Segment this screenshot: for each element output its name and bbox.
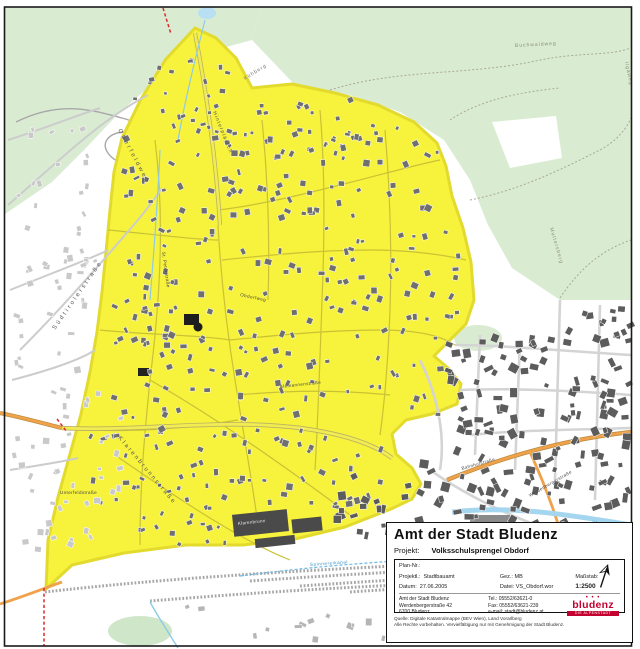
- building: [412, 363, 415, 367]
- building: [204, 388, 210, 393]
- building: [287, 120, 292, 125]
- building: [143, 284, 150, 290]
- building: [57, 351, 62, 356]
- building: [312, 636, 319, 643]
- building: [618, 462, 623, 467]
- building: [310, 111, 314, 115]
- building: [148, 200, 153, 204]
- project-row: Projekt: Volksschulsprengel Obdorf: [394, 546, 625, 555]
- building: [30, 488, 35, 493]
- building: [622, 493, 629, 503]
- building: [339, 508, 345, 514]
- building: [81, 302, 87, 309]
- building: [510, 388, 518, 398]
- building: [267, 499, 272, 505]
- building: [280, 491, 287, 497]
- building: [308, 129, 312, 134]
- building: [410, 405, 415, 410]
- building: [157, 65, 162, 70]
- building: [263, 111, 268, 116]
- building: [360, 239, 364, 243]
- building: [131, 416, 135, 420]
- building: [360, 503, 367, 509]
- building: [93, 497, 100, 504]
- building: [255, 428, 260, 433]
- building: [68, 332, 75, 336]
- building: [260, 104, 264, 108]
- building: [547, 336, 555, 343]
- building: [354, 133, 360, 140]
- building: [404, 290, 411, 297]
- building: [600, 461, 609, 467]
- building: [191, 118, 196, 122]
- building: [371, 287, 377, 294]
- building: [296, 267, 301, 274]
- building: [325, 359, 330, 363]
- building: [244, 133, 247, 137]
- building: [498, 341, 504, 349]
- building: [590, 375, 596, 381]
- building: [621, 440, 631, 450]
- building: [253, 346, 258, 352]
- address-column: Amt der Stadt Bludenz Werdenbergerstraße…: [399, 596, 488, 616]
- building: [144, 433, 150, 437]
- drawn-by-field: Gez.: MB: [500, 573, 576, 581]
- building: [147, 369, 152, 375]
- building: [37, 529, 44, 536]
- building: [160, 108, 165, 114]
- building: [321, 160, 326, 167]
- building: [292, 410, 300, 418]
- source-note: Quelle: Digitale Katastralmappe (BEV Wie…: [394, 616, 625, 628]
- building: [64, 500, 69, 503]
- building: [336, 199, 342, 206]
- building: [15, 436, 21, 442]
- building: [229, 479, 234, 483]
- building: [424, 269, 431, 276]
- building: [376, 505, 382, 513]
- building: [45, 519, 52, 527]
- building: [451, 349, 461, 358]
- building: [129, 166, 135, 174]
- building: [413, 314, 418, 321]
- building: [318, 271, 325, 275]
- building: [333, 515, 341, 523]
- building: [210, 229, 215, 235]
- building: [515, 340, 523, 347]
- building: [73, 366, 81, 374]
- building: [169, 531, 175, 537]
- bludenz-logo: • • • bludenz DIE ALPENSTADT: [566, 596, 620, 616]
- building: [401, 494, 409, 501]
- building: [435, 413, 440, 417]
- building: [97, 467, 101, 471]
- building: [283, 270, 288, 274]
- building: [532, 452, 541, 461]
- building: [245, 150, 250, 156]
- building: [309, 501, 313, 505]
- building: [148, 77, 154, 83]
- building: [161, 188, 166, 192]
- building: [128, 189, 134, 196]
- building: [42, 437, 49, 444]
- building: [63, 259, 67, 264]
- contact-column: Tel.: 05552/63621-0 Fax: 05552/63621-239…: [488, 596, 566, 616]
- building: [63, 403, 67, 410]
- building: [142, 306, 148, 311]
- building: [479, 339, 486, 345]
- building: [325, 277, 329, 283]
- building: [606, 399, 614, 403]
- building: [433, 336, 437, 340]
- building: [153, 397, 160, 403]
- building: [559, 498, 566, 505]
- building: [340, 144, 347, 152]
- building: [256, 109, 262, 115]
- building: [510, 414, 519, 424]
- building: [123, 480, 130, 485]
- building: [452, 267, 459, 271]
- building: [437, 366, 444, 372]
- building: [99, 441, 103, 444]
- building: [99, 476, 104, 480]
- building: [192, 473, 196, 478]
- building: [345, 500, 353, 507]
- building: [465, 430, 472, 436]
- building: [208, 111, 212, 115]
- agency-title: Amt der Stadt Bludenz: [394, 527, 625, 543]
- building: [207, 506, 211, 510]
- plan-number-label: Plan-Nr.:: [399, 562, 503, 570]
- building: [570, 410, 575, 416]
- building: [351, 623, 354, 627]
- building: [255, 260, 261, 267]
- building: [390, 183, 396, 189]
- building: [329, 257, 333, 262]
- building: [589, 485, 595, 491]
- building: [301, 211, 306, 215]
- building: [116, 485, 121, 492]
- building: [455, 310, 460, 314]
- building: [294, 625, 302, 629]
- building: [300, 180, 306, 187]
- building: [206, 259, 212, 264]
- logo-wordmark: bludenz: [566, 600, 620, 610]
- building: [267, 136, 273, 143]
- building: [377, 160, 383, 165]
- building: [83, 160, 88, 166]
- building: [435, 150, 438, 154]
- building: [570, 403, 575, 408]
- building: [231, 433, 237, 438]
- building: [623, 433, 632, 441]
- building: [547, 491, 551, 496]
- building: [419, 459, 430, 469]
- building: [286, 483, 294, 491]
- building: [76, 226, 82, 232]
- building: [230, 212, 237, 218]
- building: [244, 208, 251, 215]
- building: [235, 369, 243, 377]
- project-lead-field: Projektl.: Stadtbauamt: [399, 573, 500, 581]
- building: [28, 132, 34, 138]
- building: [222, 176, 229, 182]
- building: [238, 392, 244, 399]
- building: [349, 465, 353, 471]
- building: [31, 444, 36, 449]
- building: [142, 516, 146, 520]
- building: [180, 344, 187, 348]
- building: [580, 450, 585, 459]
- plan-info-box: Plan-Nr.: Projektl.: Stadtbauamt Gez.: M…: [394, 559, 625, 613]
- building: [147, 325, 153, 332]
- building: [408, 247, 414, 250]
- address-section: Amt der Stadt Bludenz Werdenbergerstraße…: [399, 593, 620, 616]
- building: [121, 409, 128, 415]
- building: [358, 275, 365, 280]
- building: [456, 253, 461, 259]
- building: [26, 280, 34, 287]
- building: [307, 190, 313, 196]
- building: [250, 131, 254, 135]
- building: [154, 303, 161, 308]
- building: [374, 131, 379, 136]
- building: [278, 248, 282, 255]
- building: [214, 469, 219, 476]
- building: [76, 231, 82, 236]
- file-field: Datei: VS_Obdorf.wor: [500, 583, 576, 591]
- building: [56, 162, 61, 166]
- building: [219, 65, 223, 70]
- building: [365, 618, 372, 626]
- building: [306, 362, 314, 370]
- building: [45, 529, 50, 536]
- building: [307, 207, 313, 214]
- building: [252, 333, 257, 339]
- building: [57, 285, 62, 290]
- building: [132, 273, 137, 277]
- building: [223, 540, 226, 545]
- building: [346, 390, 350, 394]
- building: [222, 430, 227, 436]
- building: [337, 491, 346, 501]
- building: [201, 208, 207, 214]
- building: [540, 437, 548, 446]
- building: [275, 154, 281, 159]
- building: [187, 368, 194, 375]
- scale-value: 1:2500: [575, 583, 595, 590]
- building: [34, 203, 38, 209]
- building: [85, 183, 90, 190]
- building: [474, 417, 483, 423]
- building: [464, 514, 474, 520]
- building: [462, 348, 471, 359]
- building: [291, 309, 297, 315]
- building: [263, 397, 269, 402]
- building: [351, 213, 356, 218]
- map-sheet: OberfeldwegHinterplärschKühbergBuchwaldw…: [0, 0, 640, 649]
- building: [377, 137, 384, 143]
- building: [253, 633, 258, 639]
- building: [22, 539, 29, 546]
- building: [71, 483, 75, 489]
- building: [285, 351, 291, 356]
- building: [198, 606, 205, 612]
- building: [304, 395, 308, 402]
- building: [169, 69, 175, 73]
- building: [114, 497, 118, 501]
- building: [265, 627, 270, 632]
- building: [262, 478, 267, 482]
- building: [143, 294, 147, 300]
- building: [460, 473, 465, 479]
- building: [205, 483, 208, 488]
- building: [272, 347, 279, 354]
- building: [572, 386, 580, 392]
- building: [378, 385, 381, 390]
- building: [621, 414, 629, 420]
- building: [447, 375, 455, 385]
- building: [519, 431, 525, 439]
- building: [219, 88, 225, 93]
- building: [63, 247, 69, 254]
- building: [50, 501, 56, 506]
- pond: [198, 7, 216, 19]
- building: [337, 279, 343, 284]
- building: [66, 393, 71, 399]
- building: [479, 504, 486, 511]
- building: [520, 368, 529, 375]
- building: [363, 159, 371, 167]
- building: [79, 190, 84, 195]
- building: [423, 480, 431, 489]
- building: [184, 497, 189, 503]
- building: [190, 387, 195, 391]
- building: [95, 391, 101, 396]
- building: [164, 92, 168, 95]
- building: [232, 131, 238, 136]
- building: [283, 174, 288, 179]
- building: [453, 274, 459, 280]
- building: [34, 546, 41, 552]
- building: [610, 309, 617, 314]
- building: [503, 469, 514, 476]
- building: [611, 316, 616, 322]
- building: [351, 301, 357, 306]
- building: [77, 271, 84, 275]
- building: [330, 185, 334, 189]
- building: [338, 181, 344, 187]
- building: [331, 480, 335, 485]
- building: [365, 140, 371, 145]
- building: [425, 317, 429, 321]
- building: [412, 235, 416, 238]
- building: [618, 306, 626, 313]
- building: [90, 477, 95, 484]
- project-label: Projekt:: [394, 546, 419, 555]
- building: [248, 479, 252, 482]
- building: [248, 449, 252, 454]
- building: [168, 309, 173, 314]
- building: [450, 314, 453, 318]
- building: [198, 291, 205, 298]
- building: [405, 482, 413, 489]
- building: [114, 341, 119, 345]
- building: [390, 258, 395, 264]
- street-label: Unterfeldstraße: [60, 490, 97, 495]
- building: [297, 128, 303, 132]
- building: [510, 506, 516, 512]
- building: [200, 523, 205, 526]
- building: [345, 132, 351, 136]
- building: [195, 241, 201, 245]
- building: [525, 466, 536, 475]
- building: [462, 419, 473, 428]
- building: [133, 97, 138, 101]
- building: [563, 339, 572, 347]
- building: [66, 272, 72, 279]
- building: [18, 462, 25, 469]
- north-arrow-icon: [594, 564, 614, 590]
- building: [136, 254, 140, 260]
- logo-claim: DIE ALPENSTADT: [567, 611, 619, 616]
- building: [211, 135, 219, 141]
- building: [356, 529, 363, 536]
- building: [499, 404, 509, 413]
- title-block: Amt der Stadt Bludenz Projekt: Volksschu…: [386, 522, 633, 643]
- project-value: Volksschulsprengel Obdorf: [432, 546, 529, 555]
- building: [499, 435, 505, 440]
- building: [493, 396, 502, 401]
- building: [60, 443, 67, 449]
- building: [19, 334, 24, 339]
- date-field: Datum: 27.06.2005: [399, 583, 500, 591]
- building: [604, 502, 613, 511]
- building: [124, 194, 129, 198]
- building: [239, 475, 245, 481]
- building: [377, 479, 383, 485]
- building: [164, 342, 171, 348]
- building: [335, 116, 340, 121]
